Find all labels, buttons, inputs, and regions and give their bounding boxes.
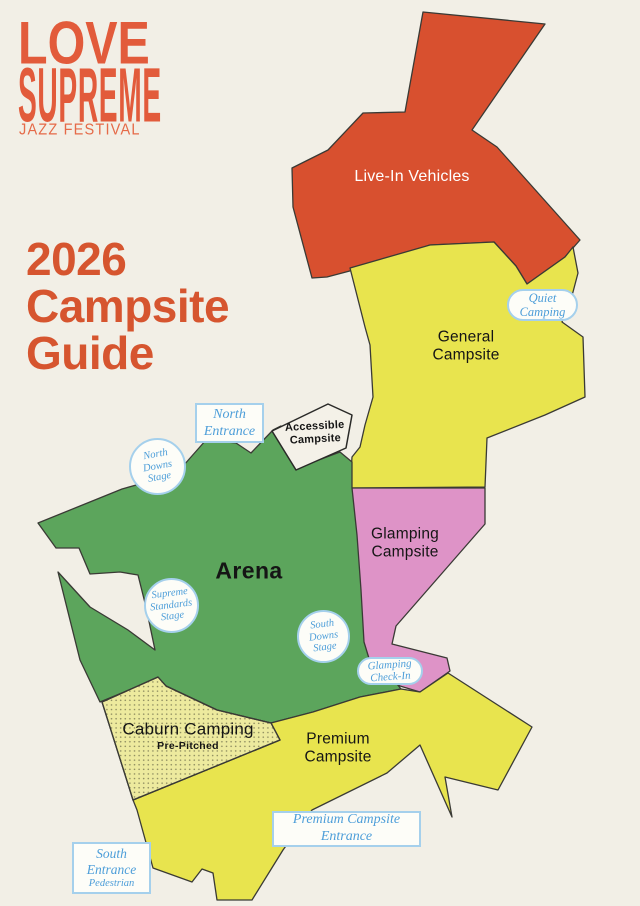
north-downs-stage-label: North Downs Stage: [140, 447, 175, 486]
region-label-glamping-campsite: Glamping Campsite: [371, 526, 439, 563]
south-entrance-badge: South Entrance Pedestrian: [72, 842, 151, 894]
glamping-check-in-badge: Glamping Check-In: [357, 657, 423, 685]
south-downs-stage-badge: South Downs Stage: [297, 610, 350, 663]
region-label-accessible-campsite: Accessible Campsite: [285, 419, 346, 447]
quiet-camping-label: Quiet Camping: [520, 291, 566, 320]
supreme-standards-stage-label: Supreme Standards Stage: [148, 586, 194, 626]
region-live-in-vehicles: [292, 12, 580, 284]
premium-campsite-entrance-label: Premium Campsite Entrance: [293, 812, 400, 846]
south-downs-stage-label: South Downs Stage: [307, 618, 340, 656]
region-label-caburn-sublabel: Pre-Pitched: [157, 740, 219, 752]
north-entrance-badge: North Entrance: [195, 403, 264, 443]
glamping-check-in-label: Glamping Check-In: [367, 657, 413, 685]
love-supreme-logo: LOVE SUPREME JAZZ FESTIVAL: [18, 22, 218, 142]
quiet-camping-badge: Quiet Camping: [507, 289, 578, 321]
supreme-standards-stage-badge: Supreme Standards Stage: [144, 578, 199, 633]
region-label-premium-campsite: Premium Campsite: [304, 731, 371, 768]
south-entrance-label: South Entrance: [87, 846, 137, 878]
campsite-guide-poster: LOVE SUPREME JAZZ FESTIVAL 2026 Campsite…: [0, 0, 640, 906]
region-label-arena: Arena: [215, 558, 282, 585]
premium-campsite-entrance-badge: Premium Campsite Entrance: [272, 811, 421, 847]
south-entrance-sublabel: Pedestrian: [89, 878, 135, 890]
region-label-live-in-vehicles: Live-In Vehicles: [354, 168, 469, 186]
page-title: 2026 Campsite Guide: [26, 236, 229, 377]
logo-tagline: JAZZ FESTIVAL: [19, 121, 141, 139]
north-downs-stage-badge: North Downs Stage: [129, 438, 186, 495]
north-entrance-label: North Entrance: [204, 406, 255, 441]
region-label-general-campsite: General Campsite: [432, 329, 499, 366]
region-label-caburn-camping: Caburn Camping: [122, 721, 253, 740]
